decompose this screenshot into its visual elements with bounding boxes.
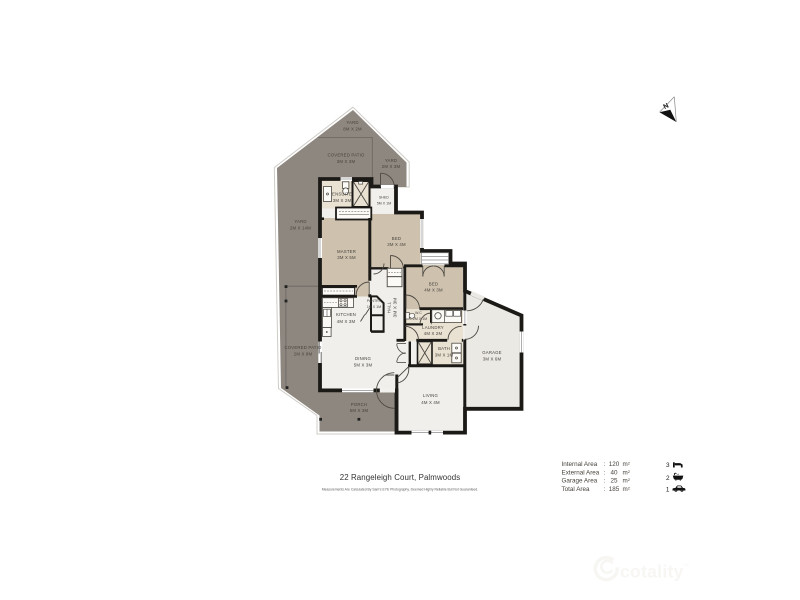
svg-text::: : — [604, 486, 606, 493]
svg-text:MASTER: MASTER — [337, 249, 356, 254]
svg-text:3M X 6M: 3M X 6M — [483, 357, 502, 362]
svg-text::: : — [604, 470, 606, 477]
svg-text:Internal Area: Internal Area — [562, 461, 598, 468]
svg-text:25: 25 — [610, 478, 618, 485]
svg-text:cotality: cotality — [620, 562, 684, 582]
svg-text:Measurements Are Calculated By: Measurements Are Calculated By Sam's EYE… — [322, 488, 478, 492]
svg-text:8M X 2M: 8M X 2M — [343, 127, 362, 132]
svg-text:LIVING: LIVING — [423, 393, 439, 398]
svg-text:BATH: BATH — [438, 346, 450, 351]
svg-text:2M X 14M: 2M X 14M — [290, 226, 311, 231]
svg-text:YARD: YARD — [346, 120, 358, 125]
svg-text::: : — [604, 461, 606, 468]
svg-text:BED: BED — [392, 236, 401, 241]
svg-text:2M X 8M: 2M X 8M — [294, 352, 313, 357]
svg-text:3M X 4M: 3M X 4M — [387, 242, 406, 247]
svg-text:40: 40 — [610, 470, 618, 477]
svg-text:3M X 2M: 3M X 2M — [333, 198, 352, 203]
svg-text:3M X 5M: 3M X 5M — [337, 255, 356, 260]
svg-text:LAUNDRY: LAUNDRY — [422, 325, 444, 330]
svg-text:185: 185 — [609, 486, 620, 493]
svg-text:Total Area: Total Area — [562, 486, 591, 493]
svg-text:3M X 3M: 3M X 3M — [337, 159, 356, 164]
svg-text:ENSUITE: ENSUITE — [332, 192, 352, 197]
svg-text:YARD: YARD — [294, 219, 306, 224]
svg-text:BED: BED — [429, 281, 438, 286]
svg-text:4M X 3M: 4M X 3M — [424, 288, 443, 293]
svg-text:SHED: SHED — [379, 195, 389, 199]
svg-text:5M X 3M: 5M X 3M — [350, 408, 369, 413]
svg-text:4M X 2M: 4M X 2M — [424, 331, 443, 336]
svg-text:4M X 3M: 4M X 3M — [337, 319, 356, 324]
svg-text:GARAGE: GARAGE — [482, 350, 501, 355]
svg-text:22 Rangeleigh Court, Palmwoods: 22 Rangeleigh Court, Palmwoods — [340, 473, 461, 482]
svg-text:YARD: YARD — [385, 158, 397, 163]
svg-text:1.2M X 1M: 1.2M X 1M — [410, 317, 427, 321]
svg-text:1M X 1M: 1M X 1M — [367, 305, 381, 309]
svg-text:DINING: DINING — [355, 356, 372, 361]
svg-text:KITCHEN: KITCHEN — [336, 312, 356, 317]
svg-text:COVERED PATIO: COVERED PATIO — [284, 345, 322, 350]
svg-text:W.C: W.C — [415, 311, 422, 315]
svg-text:TM: TM — [683, 562, 689, 567]
svg-text:120: 120 — [609, 461, 620, 468]
svg-text:2: 2 — [666, 475, 670, 482]
svg-text:External Area: External Area — [562, 470, 600, 477]
svg-text:3: 3 — [666, 462, 670, 469]
svg-text:2M X 3M: 2M X 3M — [382, 164, 401, 169]
svg-text:3M X 1M: 3M X 1M — [435, 353, 454, 358]
svg-text:5M X 3M: 5M X 3M — [354, 363, 373, 368]
svg-text:PANTRY: PANTRY — [367, 299, 382, 303]
svg-text:3M X 3M: 3M X 3M — [392, 298, 397, 318]
svg-text:Garage Area: Garage Area — [562, 478, 598, 485]
svg-text:PORCH: PORCH — [351, 402, 367, 407]
svg-text:COVERED PATIO: COVERED PATIO — [327, 153, 365, 158]
svg-text::: : — [604, 478, 606, 485]
svg-text:1: 1 — [666, 486, 670, 493]
svg-text:HALL: HALL — [387, 301, 392, 313]
svg-text:4M X 4M: 4M X 4M — [421, 400, 440, 405]
svg-text:5M X 1M: 5M X 1M — [377, 201, 391, 205]
